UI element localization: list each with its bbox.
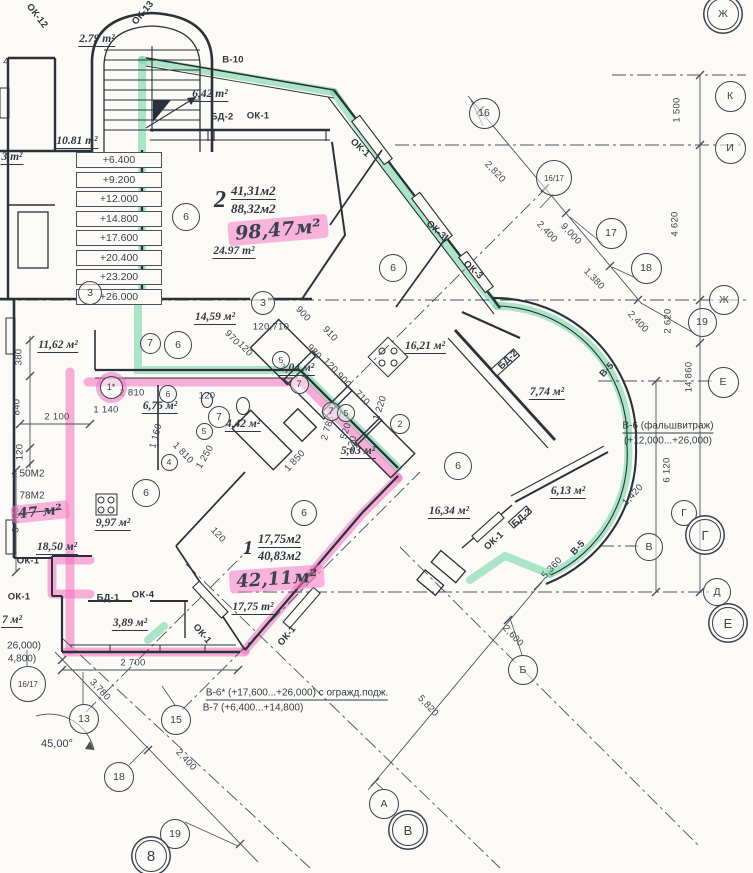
grid-bubble: 1*: [100, 376, 123, 399]
grid-bubble: К: [715, 81, 746, 112]
room-area-label: 6,75 м²: [142, 400, 178, 414]
elevation-level: +20.400: [76, 250, 162, 266]
grid-bubble: Е: [708, 367, 739, 398]
grid-bubble: 18: [631, 253, 662, 284]
grid-bubble: 5: [272, 351, 290, 369]
note-label: В-6* (+17,600...+26,000) с огражд.подж.: [206, 688, 388, 701]
grid-bubble: В: [392, 814, 424, 846]
grid-bubble: 6: [291, 500, 317, 526]
grid-bubble: 5: [196, 423, 213, 440]
grid-bubble: 19: [160, 819, 190, 849]
note-label: 78М2: [19, 491, 44, 502]
elevation-level: +12.000: [76, 191, 162, 207]
apartment-1-summary: 1 17,75м2 40,83м2: [243, 532, 301, 564]
dimension-label: 2 620: [663, 308, 674, 333]
grid-bubble: 15: [161, 705, 191, 735]
grid-bubble: 6: [132, 479, 160, 507]
note-label: 4: [3, 57, 9, 68]
dimension-label: 2 810: [119, 388, 144, 399]
apartment-number: 2: [214, 187, 226, 214]
living-area: 17,75м2: [258, 532, 301, 547]
room-area-label: 7,74 м²: [529, 386, 565, 400]
grid-bubble: Ж: [709, 285, 739, 315]
grid-bubble: 16: [469, 98, 500, 129]
grid-bubble: 17: [596, 218, 627, 249]
room-area-label: 11,62 м²: [37, 339, 78, 353]
grid-bubble: 6: [164, 331, 192, 359]
note-label: 4,800): [8, 654, 36, 665]
note-label: В-7 (+6,400...+14,800): [203, 703, 304, 714]
dimension-label: 2 100: [44, 412, 69, 423]
room-area-label: 4,42 м²: [225, 418, 261, 432]
grid-bubble: 7: [140, 333, 161, 354]
grid-bubble: Г: [671, 500, 697, 526]
apartment-areas-fraction: 41,31м2 88,32м2: [231, 183, 276, 217]
grid-bubble: 8: [135, 840, 167, 872]
room-area-label: 2.79 m²: [78, 33, 115, 47]
dimension-label: 840: [12, 399, 23, 416]
room-area-label: 16,21 м²: [404, 340, 446, 354]
elevation-level: +9.200: [76, 172, 162, 188]
grid-bubble: 4: [161, 454, 178, 471]
grid-bubble: 3: [78, 281, 102, 305]
note-label: 50М2: [19, 469, 44, 480]
room-area-label: 3,89 м²: [112, 617, 148, 631]
room-area-label: 16,34 м²: [428, 505, 470, 519]
grid-bubble: 6: [159, 385, 177, 403]
grid-bubble: Г: [689, 519, 721, 551]
note-label: В-6 (фальшвитраж): [622, 421, 713, 434]
dimension-label: 120: [15, 444, 26, 461]
room-area-label: 6,42 m²: [191, 88, 228, 102]
dimension-label: 6 120: [662, 457, 673, 482]
opening-tag-label: ОК-1: [8, 592, 30, 603]
grid-bubble: 7: [290, 375, 309, 394]
elevation-level: +17.600: [76, 230, 162, 246]
note-label: 26,000): [7, 641, 41, 652]
grid-bubble: 16/17: [536, 160, 572, 196]
grid-bubble: 6: [444, 452, 472, 480]
opening-tag-label: БД-1: [97, 593, 120, 604]
elevation-level: +14.800: [76, 211, 162, 227]
room-area-label: 10.81 m²: [55, 135, 98, 149]
dimension-label: 14 860: [684, 362, 695, 393]
room-area-label: 17,75 m²: [231, 601, 274, 615]
opening-tag-label: БД-2: [211, 112, 234, 123]
room-area-label: 9,97 м²: [95, 517, 131, 531]
dimension-label: 4 620: [670, 211, 681, 236]
apartment-number: 1: [243, 537, 253, 560]
room-area-label: 6,13 м²: [550, 485, 586, 499]
grid-bubble: 6: [379, 254, 407, 282]
grid-bubble: 5: [337, 404, 355, 422]
dimension-label: 2 700: [120, 658, 145, 669]
grid-bubble: А: [369, 789, 399, 819]
living-area: 41,31м2: [231, 183, 276, 199]
grid-bubble: Д: [703, 578, 731, 606]
grid-bubble: И: [715, 133, 746, 164]
grid-bubble: 13: [69, 704, 99, 734]
dimension-label: 1 140: [93, 405, 118, 416]
grid-bubble: 7: [208, 406, 230, 428]
opening-tag-label: ОК-4: [132, 590, 154, 601]
grid-bubble: 16/17: [10, 666, 46, 702]
note-label: 45,00°: [41, 738, 73, 750]
opening-tag-label: В-10: [222, 55, 243, 66]
grid-bubble: Б: [508, 655, 538, 685]
apartment-2-summary: 2 41,31м2 88,32м2: [214, 183, 276, 217]
grid-bubble: 19: [688, 308, 717, 337]
elevation-level: +6.400: [76, 152, 162, 168]
dimension-label: 380: [14, 349, 25, 366]
room-area-label: 3 m²: [0, 151, 23, 165]
dimension-label: 120: [199, 391, 216, 402]
scanned-floor-plan: +6.400+9.200+12.000+14.800+17.600+20.400…: [0, 0, 753, 873]
room-area-label: 18,50 м²: [36, 541, 78, 555]
opening-tag-label: ОК-1: [247, 111, 269, 122]
dimension-label: 1 500: [672, 97, 683, 122]
grid-bubble: В: [635, 533, 663, 561]
grid-bubble: 6: [172, 203, 200, 231]
opening-tag-label: ОК-1: [17, 556, 39, 567]
grid-bubble: 18: [104, 762, 134, 792]
room-area-label: 14,59 м²: [194, 311, 236, 325]
apartment-areas-fraction: 17,75м2 40,83м2: [258, 532, 301, 564]
note-label: (+12,000...+26,000): [624, 436, 712, 447]
grid-bubble: 3: [251, 291, 275, 315]
dimension-label: 120,710: [253, 322, 289, 333]
room-area-label: 7 м²: [1, 614, 23, 628]
total-area: 40,83м2: [258, 547, 301, 564]
room-area-label: 24.97 m²: [212, 245, 255, 259]
grid-bubble: Е: [712, 607, 744, 639]
grid-bubble: 2: [390, 414, 410, 434]
total-area: 88,32м2: [231, 199, 276, 217]
walls-layer: [0, 13, 636, 652]
